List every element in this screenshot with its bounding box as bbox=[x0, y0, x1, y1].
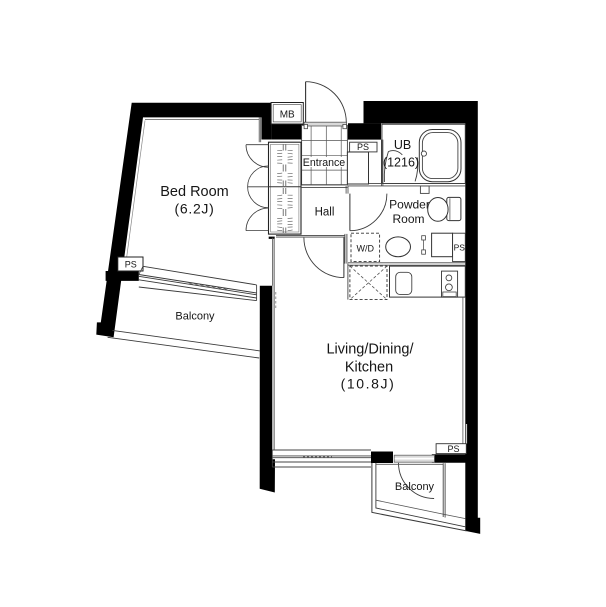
svg-text:PS: PS bbox=[125, 259, 137, 269]
svg-text:PS: PS bbox=[357, 142, 369, 152]
svg-text:Entrance: Entrance bbox=[303, 157, 346, 169]
svg-text:PS: PS bbox=[447, 444, 459, 454]
svg-text:(1216): (1216) bbox=[383, 156, 419, 170]
svg-text:Balcony: Balcony bbox=[175, 311, 215, 323]
svg-text:UB: UB bbox=[394, 138, 411, 152]
svg-text:(6.2J): (6.2J) bbox=[175, 201, 215, 217]
svg-text:Bed Room: Bed Room bbox=[160, 184, 229, 200]
svg-text:W/D: W/D bbox=[357, 243, 375, 253]
svg-text:PS: PS bbox=[454, 243, 466, 253]
svg-text:Living/Dining/: Living/Dining/ bbox=[326, 342, 414, 358]
svg-text:(10.8J): (10.8J) bbox=[341, 376, 396, 392]
svg-text:MB: MB bbox=[280, 110, 295, 121]
svg-text:Hall: Hall bbox=[315, 207, 335, 219]
svg-text:Powder: Powder bbox=[389, 198, 430, 212]
svg-text:Room: Room bbox=[392, 212, 424, 226]
svg-text:Balcony: Balcony bbox=[395, 481, 435, 493]
svg-text:Kitchen: Kitchen bbox=[345, 360, 393, 376]
